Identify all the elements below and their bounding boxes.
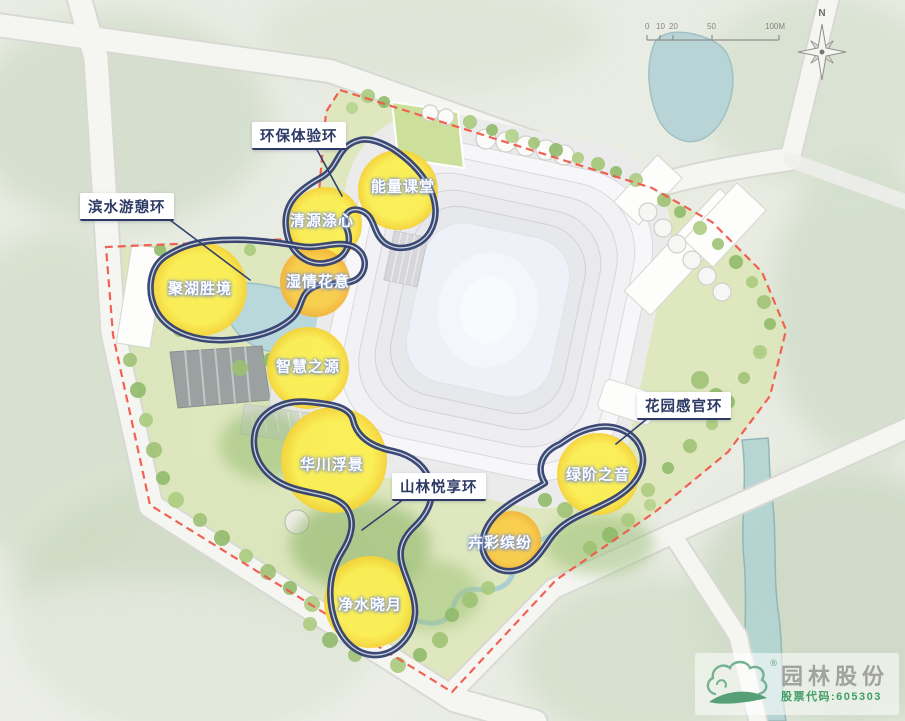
scale-bar-line <box>645 32 785 42</box>
scale-tick-50: 50 <box>707 22 716 31</box>
node-floating-scenery-label: 华川浮景 <box>300 454 364 475</box>
scale-tick-0: 0 <box>645 22 649 31</box>
scale-bar: 0 10 20 50 100M <box>645 22 785 44</box>
registered-mark: ® <box>770 658 777 668</box>
node-wisdom-source-label: 智慧之源 <box>276 356 340 377</box>
map-artwork <box>0 0 905 721</box>
node-energy-classroom-label: 能量课堂 <box>371 176 435 197</box>
node-pure-water-moon-label: 净水晓月 <box>338 594 402 615</box>
compass: N <box>792 8 852 82</box>
scale-tick-100: 100M <box>765 22 785 31</box>
node-clear-spring-label: 清源涤心 <box>290 210 354 231</box>
logo-company-name: 园林股份 <box>781 664 889 689</box>
scale-tick-10: 10 <box>656 22 665 31</box>
site-plan: 能量课堂 清源涤心 聚湖胜境 湿情花意 智慧之源 华川浮景 净水晓月 绿阶之音 … <box>0 0 905 721</box>
compass-north-label: N <box>792 8 852 19</box>
company-logo: ® 园林股份 股票代码:605303 <box>695 653 899 715</box>
ring-label-mountain-joy[interactable]: 山林悦享环 <box>392 473 486 501</box>
node-lake-gathering-label: 聚湖胜境 <box>168 278 232 299</box>
node-green-steps-label: 绿阶之音 <box>566 464 630 485</box>
ring-label-waterfront-leisure[interactable]: 滨水游憩环 <box>80 193 174 221</box>
ring-label-garden-sense[interactable]: 花园感官环 <box>637 392 731 420</box>
compass-rose-icon <box>794 20 850 80</box>
logo-stock-code: 股票代码:605303 <box>781 691 889 704</box>
node-colorful-flowers-label: 卉彩缤纷 <box>468 532 532 553</box>
node-wetland-flower-label: 湿情花意 <box>286 271 350 292</box>
logo-cloud-icon: ® <box>703 658 773 710</box>
scale-tick-20: 20 <box>669 22 678 31</box>
ring-label-eco-experience[interactable]: 环保体验环 <box>252 122 346 150</box>
